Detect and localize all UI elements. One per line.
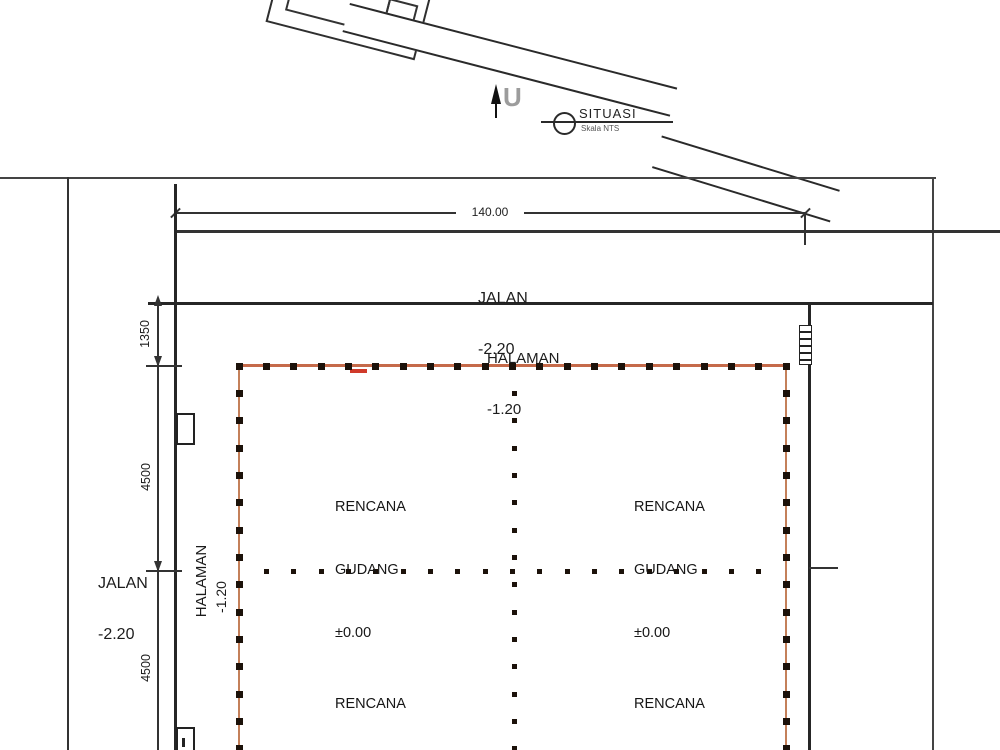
- unit-name2: GUDANG: [335, 560, 406, 581]
- column-marker: [428, 569, 433, 574]
- column-marker: [512, 555, 517, 560]
- column-marker: [512, 446, 517, 451]
- column-marker: [512, 500, 517, 505]
- north-label: U: [503, 82, 522, 113]
- column-marker: [512, 582, 517, 587]
- unit-label-bottom-right: RENCANA GUDANG ±0.00: [634, 652, 705, 750]
- column-marker: [454, 363, 461, 370]
- column-marker: [783, 581, 790, 588]
- column-marker: [783, 445, 790, 452]
- road-name: JALAN: [478, 290, 528, 307]
- column-marker: [372, 363, 379, 370]
- column-marker: [565, 569, 570, 574]
- unit-name: RENCANA: [335, 694, 406, 715]
- left-road-label: JALAN -2.20: [98, 541, 148, 677]
- situasi-subtitle: Skala NTS: [581, 124, 619, 133]
- column-marker: [512, 746, 517, 750]
- column-marker: [236, 636, 243, 643]
- column-marker: [512, 610, 517, 615]
- column-marker: [236, 527, 243, 534]
- column-marker: [536, 363, 543, 370]
- column-marker: [318, 363, 325, 370]
- column-marker: [592, 569, 597, 574]
- column-marker: [783, 718, 790, 725]
- column-marker: [729, 569, 734, 574]
- unit-elevation: ±0.00: [634, 623, 705, 644]
- left-road-outer-edge: [67, 177, 69, 750]
- column-marker: [619, 569, 624, 574]
- column-marker: [537, 569, 542, 574]
- column-marker: [783, 363, 790, 370]
- column-marker: [400, 363, 407, 370]
- column-marker: [783, 417, 790, 424]
- column-marker: [728, 363, 735, 370]
- column-marker: [512, 692, 517, 697]
- column-marker: [319, 569, 324, 574]
- column-marker: [783, 472, 790, 479]
- site-boundary-left: [174, 184, 177, 750]
- column-marker: [783, 554, 790, 561]
- column-marker: [482, 363, 489, 370]
- unit-name2: GUDANG: [634, 560, 705, 581]
- column-marker: [236, 445, 243, 452]
- red-door-marker: [350, 369, 367, 373]
- column-marker: [512, 391, 517, 396]
- site-boundary-top: [148, 302, 933, 305]
- column-marker: [783, 609, 790, 616]
- column-marker: [236, 554, 243, 561]
- unit-label-bottom-left: RENCANA GUDANG ±0.00: [335, 652, 406, 750]
- column-marker: [345, 363, 352, 370]
- column-marker: [483, 569, 488, 574]
- column-marker: [236, 417, 243, 424]
- unit-elevation: ±0.00: [335, 623, 406, 644]
- column-marker: [236, 745, 243, 750]
- dimension-1350: 1350: [137, 294, 153, 374]
- column-marker: [263, 363, 270, 370]
- column-marker: [783, 636, 790, 643]
- column-marker: [618, 363, 625, 370]
- column-marker: [755, 363, 762, 370]
- site-width-dimension: 140.00: [456, 205, 524, 219]
- gate-symbol-upper: [176, 413, 195, 445]
- column-marker: [512, 418, 517, 423]
- unit-name: RENCANA: [634, 694, 705, 715]
- column-marker: [783, 499, 790, 506]
- column-marker: [427, 363, 434, 370]
- unit-name: RENCANA: [335, 497, 406, 518]
- site-boundary-right: [808, 302, 811, 750]
- sheet-top-line: [0, 177, 936, 179]
- column-marker: [512, 664, 517, 669]
- column-marker: [236, 691, 243, 698]
- column-marker: [512, 719, 517, 724]
- column-marker: [236, 390, 243, 397]
- stair-hatch-symbol: [799, 325, 812, 365]
- column-marker: [236, 581, 243, 588]
- situasi-branch-road: [652, 135, 840, 222]
- situasi-symbol-icon: [553, 112, 576, 135]
- yard-elevation: -1.20: [487, 401, 560, 418]
- situasi-title-underline: [541, 121, 673, 123]
- column-marker: [236, 363, 243, 370]
- column-marker: [646, 363, 653, 370]
- column-marker: [564, 363, 571, 370]
- column-marker: [291, 569, 296, 574]
- column-marker: [756, 569, 761, 574]
- column-marker: [783, 527, 790, 534]
- column-marker: [236, 718, 243, 725]
- column-marker: [236, 472, 243, 479]
- gate-symbol-lower: [176, 727, 195, 750]
- column-marker: [455, 569, 460, 574]
- column-marker: [783, 663, 790, 670]
- column-marker: [236, 499, 243, 506]
- column-marker: [512, 528, 517, 533]
- column-marker: [783, 745, 790, 750]
- column-marker: [510, 569, 515, 574]
- situasi-title: SITUASI: [579, 106, 637, 121]
- right-grid-extension: [809, 567, 838, 569]
- column-marker: [783, 390, 790, 397]
- column-marker: [673, 363, 680, 370]
- left-yard-elevation: -1.20: [213, 557, 229, 637]
- dimension-4500-upper: 4500: [138, 437, 154, 517]
- road-name: JALAN: [98, 575, 148, 592]
- unit-name: RENCANA: [634, 497, 705, 518]
- top-yard-label: HALAMAN -1.20: [487, 316, 560, 452]
- column-marker: [783, 691, 790, 698]
- site-plan-drawing: U SITUASI Skala NTS 140.00 1350 4500 450…: [0, 0, 1000, 750]
- column-marker: [701, 363, 708, 370]
- top-road-edge-line: [175, 230, 1000, 233]
- column-marker: [591, 363, 598, 370]
- column-marker: [290, 363, 297, 370]
- sheet-right-line: [932, 177, 934, 750]
- left-yard-name: HALAMAN: [193, 531, 209, 631]
- column-marker: [264, 569, 269, 574]
- column-marker: [512, 637, 517, 642]
- column-marker: [512, 473, 517, 478]
- column-marker: [236, 663, 243, 670]
- road-elevation: -2.20: [98, 626, 148, 643]
- column-marker: [236, 609, 243, 616]
- column-marker: [509, 363, 516, 370]
